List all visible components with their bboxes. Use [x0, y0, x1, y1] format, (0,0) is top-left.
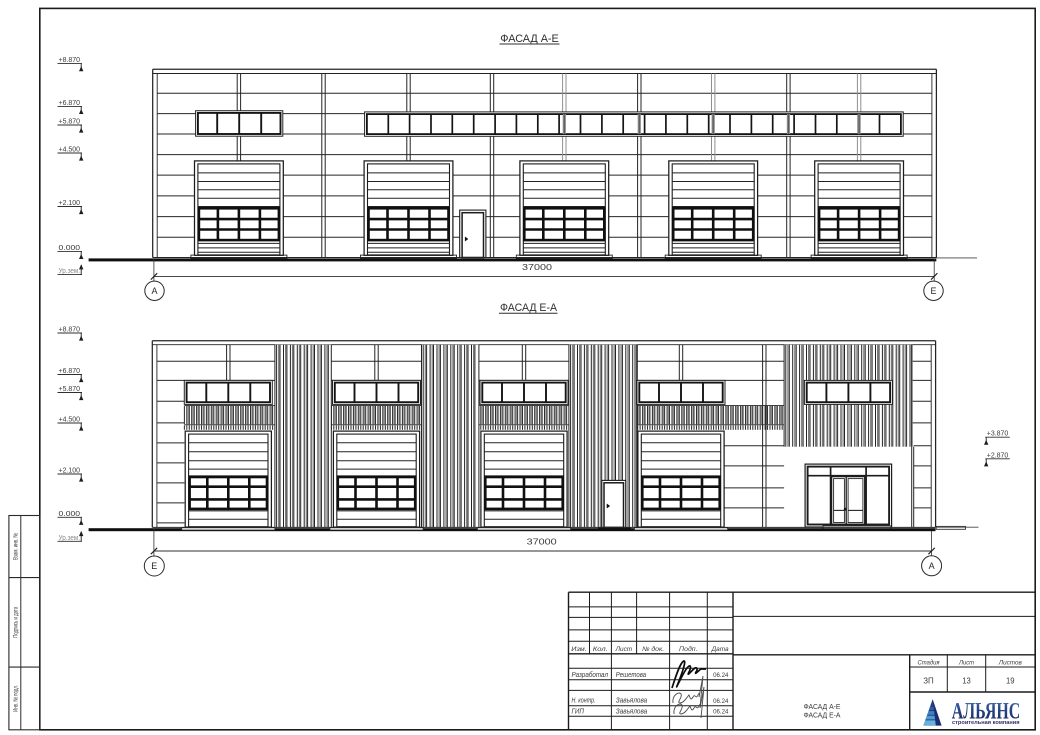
svg-text:Ур.зем.: Ур.зем.	[59, 535, 81, 542]
svg-text:06.24: 06.24	[713, 698, 729, 705]
svg-text:Инв. № подл.: Инв. № подл.	[13, 685, 20, 712]
svg-text:Разработал: Разработал	[572, 671, 609, 679]
svg-text:+6.870: +6.870	[59, 368, 81, 375]
svg-text:37000: 37000	[527, 537, 557, 547]
svg-text:+2.870: +2.870	[987, 452, 1009, 459]
svg-text:Решетова: Решетова	[616, 672, 646, 679]
svg-text:+6.870: +6.870	[59, 100, 81, 107]
svg-text:+8.870: +8.870	[59, 327, 81, 334]
svg-text:Взам. инв. №: Взам. инв. №	[13, 533, 20, 560]
svg-text:Лист: Лист	[958, 659, 974, 666]
svg-text:13: 13	[962, 677, 971, 686]
svg-text:ФАСАД А-Е: ФАСАД А-Е	[804, 704, 841, 711]
svg-text:Листов: Листов	[998, 659, 1022, 666]
svg-text:Е: Е	[151, 561, 157, 571]
svg-text:строительная компания: строительная компания	[952, 720, 1020, 726]
svg-text:19: 19	[1006, 677, 1015, 686]
svg-text:А: А	[929, 561, 935, 571]
svg-text:ФАСАД А-Е: ФАСАД А-Е	[500, 33, 559, 45]
svg-text:+3.870: +3.870	[987, 431, 1009, 438]
svg-text:Подпись и дата: Подпись и дата	[13, 606, 20, 637]
svg-text:Кол.: Кол.	[593, 646, 608, 653]
svg-text:Завьялова: Завьялова	[616, 698, 648, 705]
svg-text:+2.100: +2.100	[59, 468, 81, 475]
svg-text:ФАСАД Е-А: ФАСАД Е-А	[804, 713, 841, 720]
svg-text:№ док.: № док.	[642, 645, 664, 653]
svg-text:Завьялова: Завьялова	[616, 708, 648, 715]
svg-text:ФАСАД Е-А: ФАСАД Е-А	[500, 302, 557, 314]
svg-text:+4.500: +4.500	[59, 417, 81, 424]
svg-text:06.24: 06.24	[713, 709, 729, 716]
svg-text:0.000: 0.000	[59, 245, 81, 252]
svg-text:ГИП: ГИП	[572, 708, 585, 715]
svg-text:06.24: 06.24	[713, 672, 729, 679]
svg-text:+4.500: +4.500	[59, 147, 81, 154]
svg-text:Лист: Лист	[615, 646, 633, 653]
svg-text:Стадия: Стадия	[918, 658, 940, 666]
svg-text:Изм.: Изм.	[571, 646, 587, 653]
svg-text:ЗП: ЗП	[923, 677, 934, 686]
svg-text:+5.870: +5.870	[59, 119, 81, 126]
svg-text:Дата: Дата	[711, 646, 729, 653]
svg-text:Е: Е	[930, 286, 936, 296]
svg-text:37000: 37000	[522, 262, 552, 272]
svg-text:+5.870: +5.870	[59, 386, 81, 393]
svg-text:0.000: 0.000	[59, 511, 81, 518]
svg-text:Подп.: Подп.	[679, 645, 698, 653]
svg-text:Н. контр.: Н. контр.	[572, 698, 596, 705]
svg-text:+2.100: +2.100	[59, 200, 81, 207]
svg-text:Ур.зем.: Ур.зем.	[59, 268, 81, 275]
svg-text:+8.870: +8.870	[59, 57, 81, 64]
svg-text:А: А	[151, 286, 157, 296]
